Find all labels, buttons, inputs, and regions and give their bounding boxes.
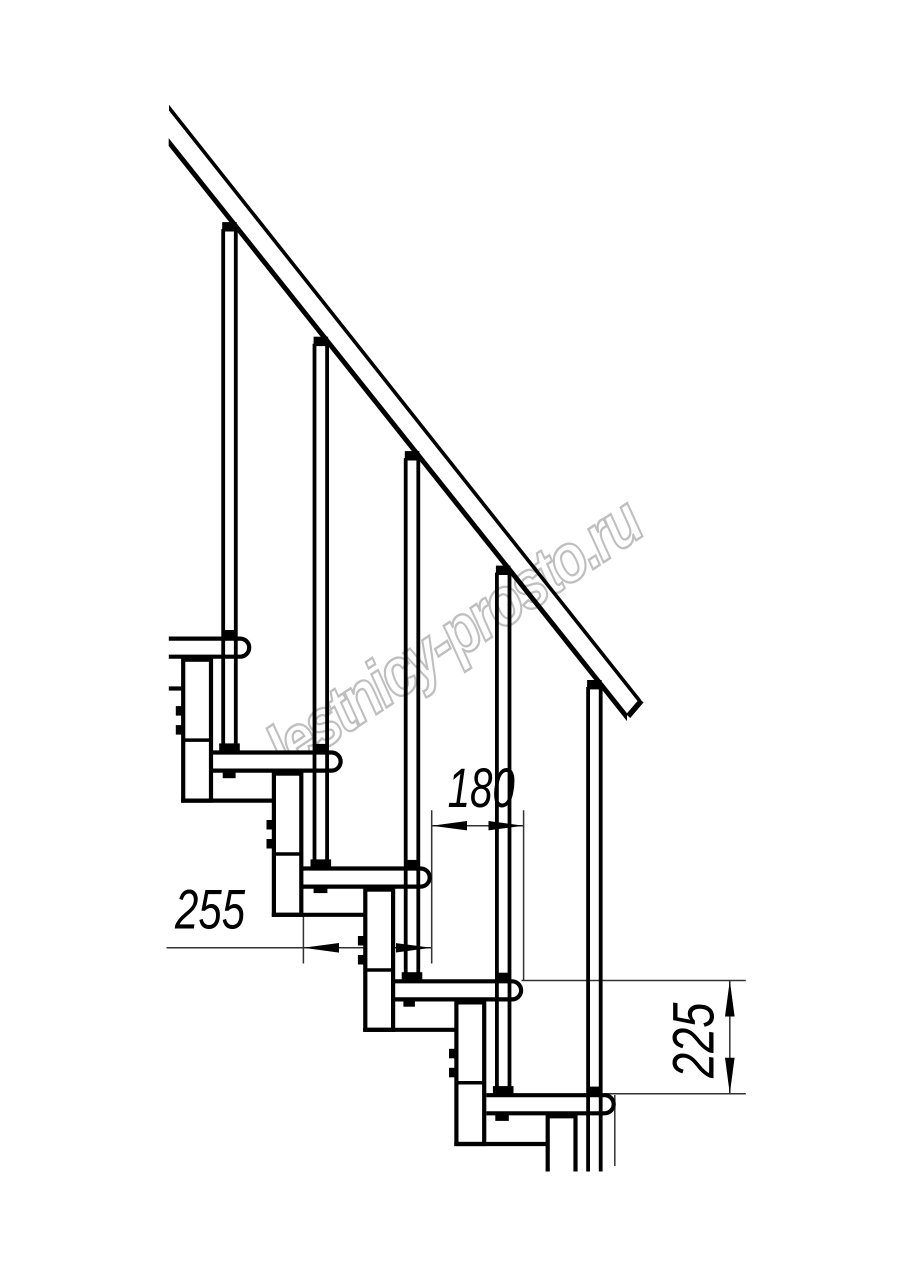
svg-text:225: 225 bbox=[662, 1002, 727, 1079]
svg-text:255: 255 bbox=[174, 879, 245, 941]
svg-text:180: 180 bbox=[448, 758, 515, 820]
